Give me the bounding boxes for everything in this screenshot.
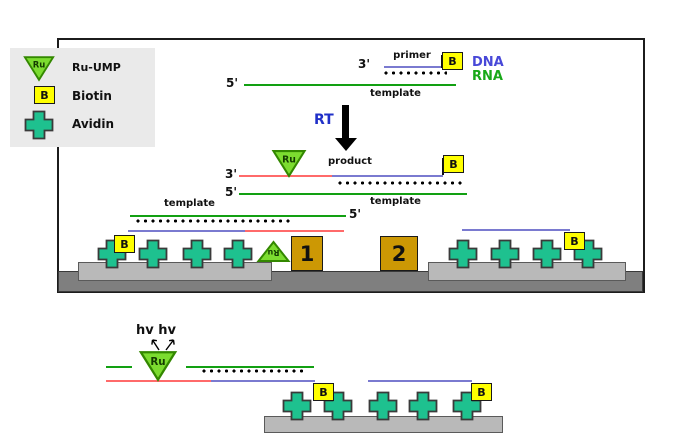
lower-template-label: template — [164, 198, 215, 209]
basepair-dots — [201, 368, 307, 374]
electrode-box-1: 1 — [291, 236, 323, 271]
template-line-rna — [244, 84, 456, 86]
electrode-box-2: 2 — [380, 236, 418, 271]
rt-label: RT — [314, 112, 334, 128]
rt-arrow — [342, 105, 349, 139]
top-template-5prime-label: 5' — [226, 76, 238, 90]
primer-line-dna — [384, 66, 441, 68]
basepair-dots — [135, 218, 292, 224]
avidin-icon — [368, 391, 398, 421]
avidin-icon — [223, 239, 253, 269]
mid-template-line-rna — [239, 193, 467, 195]
ru-ump-icon: Ru — [138, 350, 178, 382]
avidin-icon — [182, 239, 212, 269]
electrode-1-label: 1 — [300, 242, 315, 266]
biotin-symbol: B — [448, 55, 456, 68]
avidin-icon — [282, 391, 312, 421]
top-template-label: template — [370, 88, 421, 99]
biotin-icon: B — [313, 383, 334, 401]
avidin-icon — [532, 239, 562, 269]
basepair-dots — [337, 180, 465, 186]
hv-arrows-icon — [146, 336, 180, 351]
avidin-icon — [490, 239, 520, 269]
free-product-line-dna — [211, 380, 315, 382]
diagram-canvas: Ru Ru-UMP B Biotin Avidin 3' primer B 5'… — [0, 0, 693, 439]
free-template-line-rna — [106, 366, 132, 368]
legend: Ru Ru-UMP B Biotin Avidin — [10, 48, 155, 147]
biotin-symbol: B — [570, 235, 578, 248]
top-primer-label: primer — [382, 50, 442, 61]
biotin-symbol: B — [449, 158, 457, 171]
rna-key-label: RNA — [472, 69, 503, 84]
ru-symbol: Ru — [33, 60, 46, 70]
biotin-icon: B — [564, 232, 585, 250]
captured-product-line-dna — [368, 380, 472, 382]
basepair-dots — [383, 70, 447, 76]
biotin-icon: B — [442, 52, 463, 70]
electrode-2-label: 2 — [392, 242, 407, 266]
product-label: product — [328, 156, 372, 167]
biotin-icon: B — [471, 383, 492, 401]
biotin-symbol: B — [319, 386, 327, 399]
rt-arrow-head — [335, 138, 357, 151]
biotin-icon: B — [114, 235, 135, 253]
product-3prime-label: 3' — [225, 167, 237, 181]
lower-template-5prime-label: 5' — [349, 207, 361, 221]
lower-product-line-red — [245, 230, 344, 232]
lower-product-line-dna — [128, 230, 245, 232]
biotin-icon: B — [443, 155, 464, 173]
biotin-icon: B — [34, 86, 55, 104]
legend-label-ru-ump: Ru-UMP — [72, 61, 121, 74]
product-line-dna — [332, 175, 443, 177]
ru-ump-icon: Ru — [23, 55, 55, 82]
mid-template-5prime-label: 5' — [225, 185, 237, 199]
ru-ump-icon: Ru — [271, 149, 307, 178]
captured-dna-line — [462, 229, 570, 231]
mid-template-label: template — [370, 196, 421, 207]
legend-label-avidin: Avidin — [72, 117, 114, 131]
biotin-symbol: B — [120, 238, 128, 251]
avidin-icon — [138, 239, 168, 269]
biotin-symbol: B — [477, 386, 485, 399]
dna-key-label: DNA — [472, 55, 504, 70]
top-primer-3prime-label: 3' — [358, 57, 370, 71]
avidin-icon — [23, 110, 55, 140]
biotin-symbol: B — [40, 89, 48, 102]
ru-symbol: Ru — [282, 154, 296, 165]
avidin-icon — [448, 239, 478, 269]
avidin-icon — [408, 391, 438, 421]
lower-template-line-rna — [130, 215, 346, 217]
legend-label-biotin: Biotin — [72, 89, 112, 103]
ru-symbol: Ru — [267, 248, 279, 257]
ru-ump-icon-inverted: Ru — [256, 240, 291, 263]
ru-symbol: Ru — [150, 356, 165, 368]
